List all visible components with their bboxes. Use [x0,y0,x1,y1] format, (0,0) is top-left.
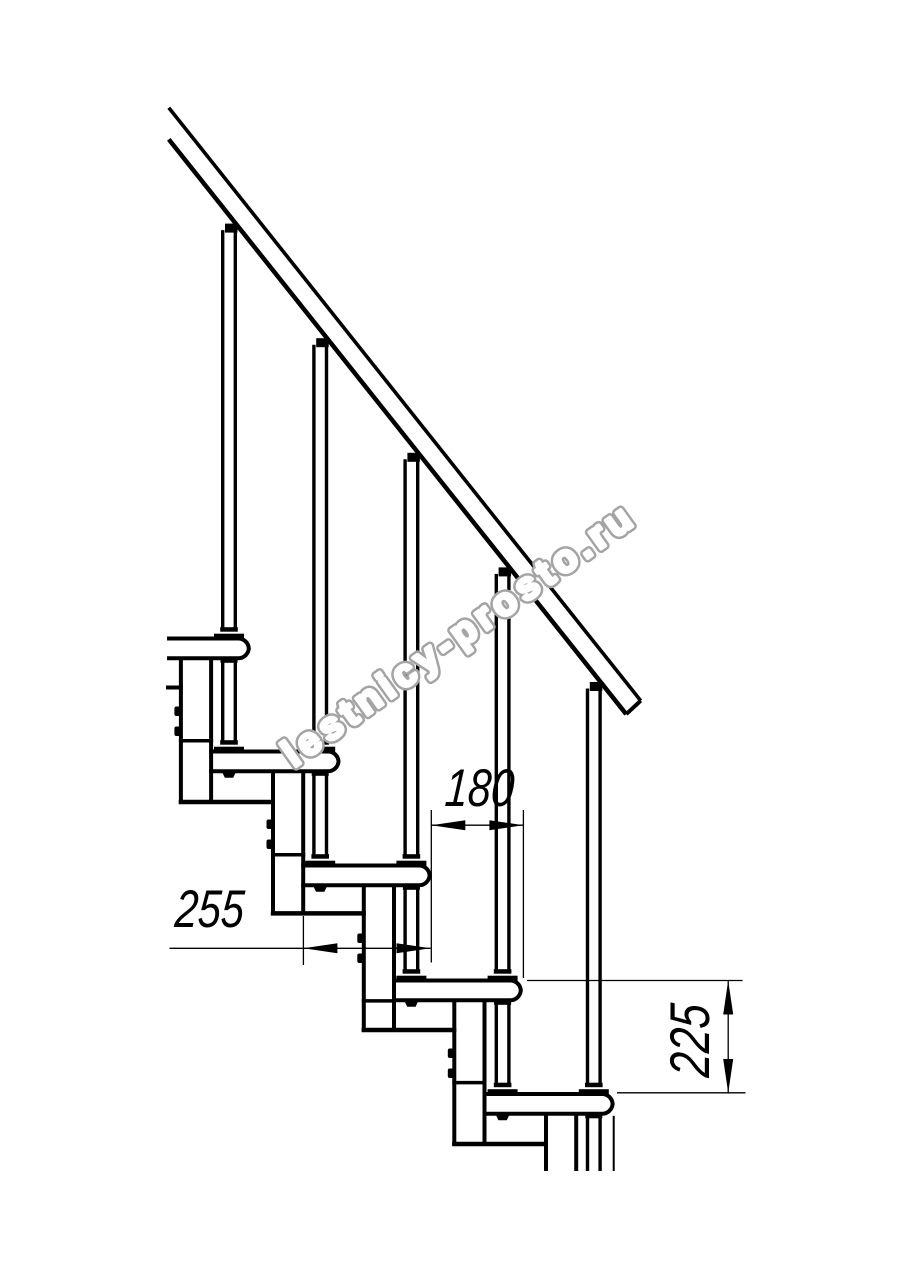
svg-text:180: 180 [443,759,516,818]
svg-text:255: 255 [172,880,246,939]
svg-text:225: 225 [658,1001,721,1080]
